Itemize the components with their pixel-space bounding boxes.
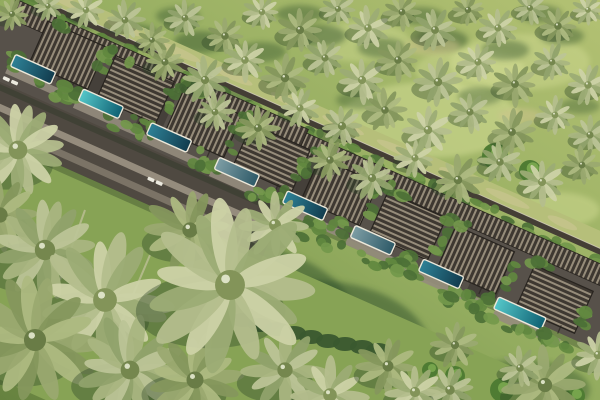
scene-svg: [0, 0, 600, 400]
aerial-render: [0, 0, 600, 400]
